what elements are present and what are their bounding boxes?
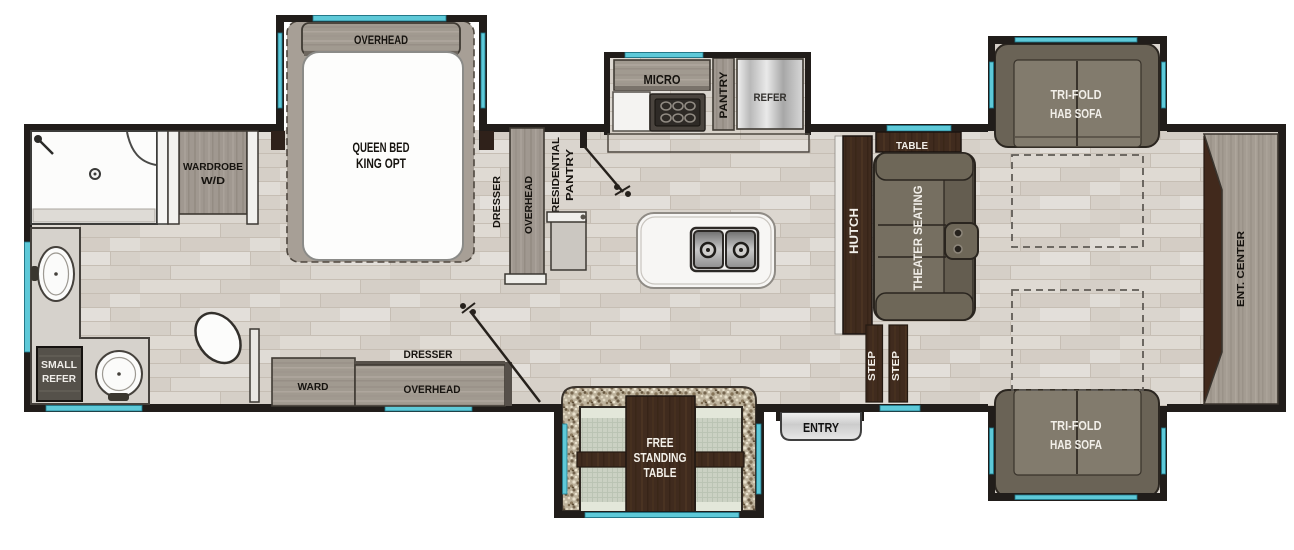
svg-text:RESIDENTIAL: RESIDENTIAL [550,136,562,213]
svg-text:QUEEN BED: QUEEN BED [353,140,410,155]
svg-text:THEATER SEATING: THEATER SEATING [913,185,925,290]
svg-text:ENTRY: ENTRY [803,421,840,435]
svg-text:TABLE: TABLE [644,465,677,480]
svg-text:TRI-FOLD: TRI-FOLD [1051,419,1102,433]
svg-text:STEP: STEP [866,351,878,381]
svg-text:REFER: REFER [754,92,787,104]
svg-text:REFER: REFER [42,374,77,385]
svg-text:HAB SOFA: HAB SOFA [1050,438,1102,452]
svg-text:KING OPT: KING OPT [356,156,407,171]
svg-text:TRI-FOLD: TRI-FOLD [1051,88,1102,102]
svg-text:OVERHEAD: OVERHEAD [354,33,408,47]
svg-text:OVERHEAD: OVERHEAD [523,176,535,234]
svg-text:MICRO: MICRO [644,73,681,87]
svg-text:DRESSER: DRESSER [491,176,503,228]
svg-text:W/D: W/D [201,175,225,187]
svg-text:WARDROBE: WARDROBE [183,161,243,173]
svg-text:HAB SOFA: HAB SOFA [1050,107,1102,121]
svg-text:PANTRY: PANTRY [718,71,730,119]
svg-text:PANTRY: PANTRY [564,149,576,201]
svg-text:SMALL: SMALL [41,360,77,371]
svg-text:STEP: STEP [890,351,902,381]
svg-text:DRESSER: DRESSER [404,349,453,361]
svg-text:FREE: FREE [647,435,674,450]
svg-text:STANDING: STANDING [634,450,687,465]
svg-text:OVERHEAD: OVERHEAD [404,384,461,396]
svg-text:WARD: WARD [298,381,329,393]
svg-text:HUTCH: HUTCH [849,208,861,254]
svg-text:ENT. CENTER: ENT. CENTER [1235,231,1247,307]
svg-text:TABLE: TABLE [896,140,928,152]
